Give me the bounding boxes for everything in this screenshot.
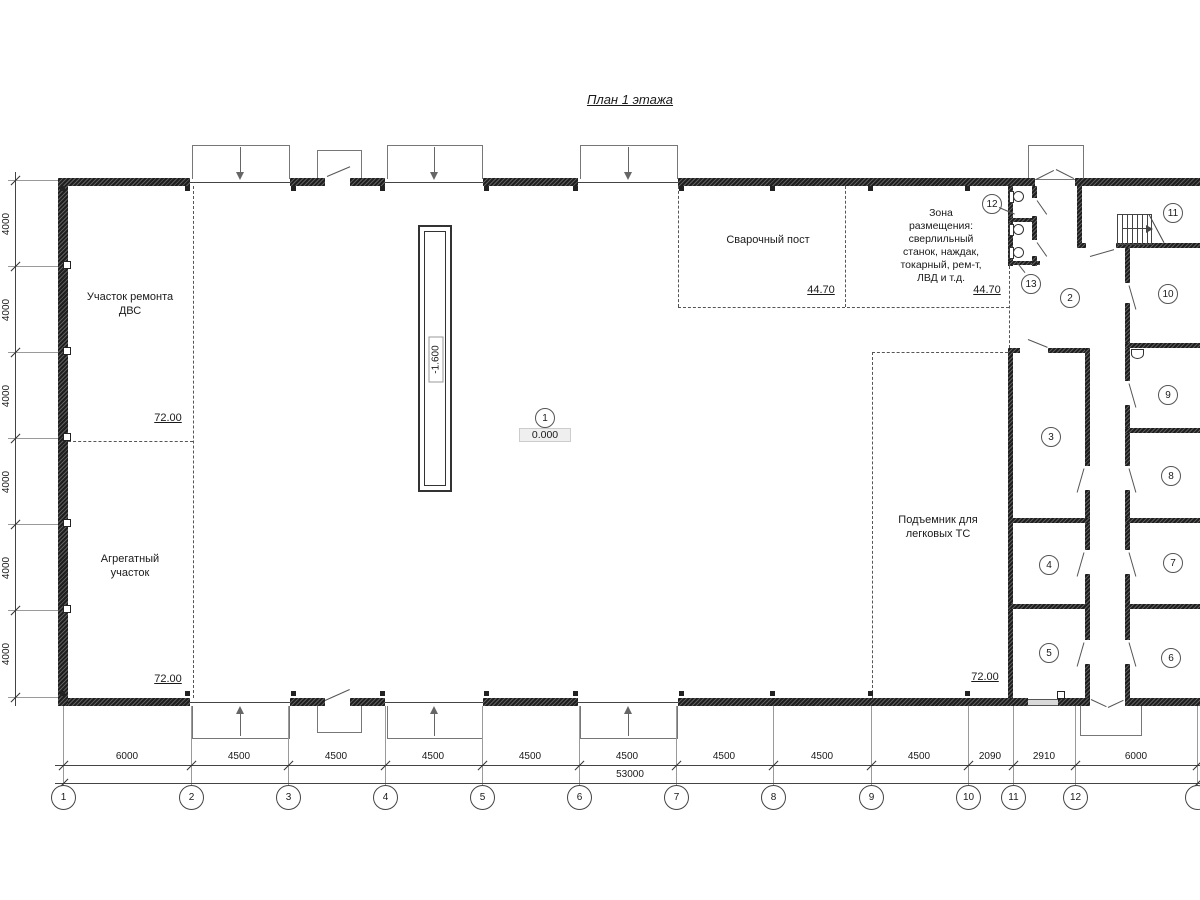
dimension-line xyxy=(55,783,1200,784)
axis-bubble-6: 6 xyxy=(567,785,592,810)
wall xyxy=(290,178,325,186)
dimension-total: 53000 xyxy=(600,769,660,781)
extension-line xyxy=(773,706,774,786)
wall xyxy=(1125,664,1130,698)
room-label: Подъемник для xyxy=(888,514,988,527)
room-label: токарный, рем-т, xyxy=(891,259,991,272)
door-swing xyxy=(1077,468,1085,492)
room-label: размещения: xyxy=(891,220,991,233)
room-number-5: 5 xyxy=(1039,643,1059,663)
door-swing xyxy=(1077,552,1085,576)
axis-bubble-4: 4 xyxy=(373,785,398,810)
wall xyxy=(1048,348,1090,353)
gate-arrow-icon xyxy=(240,147,241,173)
room-label: станок, наждак, xyxy=(891,246,991,259)
wall xyxy=(350,698,385,706)
wall xyxy=(678,698,1028,706)
dimension-value: 6000 xyxy=(1111,751,1161,763)
axis-bubble-11: 11 xyxy=(1001,785,1026,810)
wall xyxy=(1125,343,1200,348)
gate-leaf-line xyxy=(190,702,290,703)
dimension-value: 4000 xyxy=(1,462,13,502)
dimension-value: 4500 xyxy=(699,751,749,763)
dimension-line xyxy=(55,765,1200,766)
room-label: легковых ТС xyxy=(888,528,988,541)
room-number-6: 6 xyxy=(1161,648,1181,668)
dimension-value: 4500 xyxy=(505,751,555,763)
stairs-direction-arrow xyxy=(1122,228,1146,229)
wall xyxy=(290,698,325,706)
room-number-8: 8 xyxy=(1161,466,1181,486)
dimension-value: 6000 xyxy=(102,751,152,763)
wall xyxy=(1075,178,1200,186)
wall xyxy=(58,178,68,706)
pilaster xyxy=(380,186,385,191)
pilaster xyxy=(291,186,296,191)
zone-boundary xyxy=(678,307,1009,308)
wall xyxy=(1008,348,1020,353)
gate-arrow-icon xyxy=(434,147,435,173)
door-swing xyxy=(325,689,350,701)
extension-line xyxy=(1197,706,1198,786)
room-number-9: 9 xyxy=(1158,385,1178,405)
pilaster xyxy=(63,519,71,527)
room-number-2: 2 xyxy=(1060,288,1080,308)
dimension-value: 2090 xyxy=(965,751,1015,763)
wall xyxy=(1125,698,1200,706)
room-label: ЛВД и т.д. xyxy=(891,272,991,285)
drawing-title: План 1 этажа xyxy=(555,92,705,107)
toilet-icon xyxy=(1013,191,1024,202)
room-number-7: 7 xyxy=(1163,553,1183,573)
wall xyxy=(1032,186,1037,198)
extension-line xyxy=(1075,706,1076,786)
extension-line xyxy=(191,706,192,786)
dimension-value: 4000 xyxy=(1,376,13,416)
door-swing xyxy=(1037,242,1048,256)
pilaster xyxy=(63,433,71,441)
zone-boundary xyxy=(845,186,846,307)
wall xyxy=(58,698,190,706)
room-label: Участок ремонта xyxy=(68,291,192,304)
axis-bubble-3: 3 xyxy=(276,785,301,810)
axis-bubble-9: 9 xyxy=(859,785,884,810)
dimension-value: 4500 xyxy=(214,751,264,763)
dimension-value: 4000 xyxy=(1,290,13,330)
zone-boundary xyxy=(68,441,193,442)
pilaster xyxy=(60,691,65,696)
gate-leaf-line xyxy=(385,182,483,183)
wall xyxy=(1008,604,1090,609)
gate-arrow-icon xyxy=(434,713,435,736)
gate-leaf-line xyxy=(578,182,678,183)
gate-arrow-icon xyxy=(628,147,629,173)
extension-line xyxy=(63,706,64,786)
toilet-icon xyxy=(1013,224,1024,235)
axis-bubble-5: 5 xyxy=(470,785,495,810)
gate-arrow-icon xyxy=(628,713,629,736)
pilaster xyxy=(573,186,578,191)
pit-depth-mark: -1.600 xyxy=(429,337,444,383)
gate-leaf-line xyxy=(385,702,483,703)
extension-line xyxy=(288,706,289,786)
gate-leaf-line xyxy=(190,182,290,183)
pilaster xyxy=(63,261,71,269)
wall xyxy=(58,178,190,186)
extension-line xyxy=(871,706,872,786)
stairs-arrow-icon xyxy=(1146,225,1153,233)
wall xyxy=(1125,303,1130,381)
room-number-1: 1 xyxy=(535,408,555,428)
wall xyxy=(1125,405,1130,466)
pilaster xyxy=(1057,691,1065,699)
floor-plan: План 1 этажа xyxy=(0,0,1200,900)
door-swing xyxy=(1077,642,1085,666)
dimension-value: 4500 xyxy=(797,751,847,763)
wall xyxy=(678,178,1035,186)
dimension-value: 4500 xyxy=(602,751,652,763)
dimension-value: 4500 xyxy=(408,751,458,763)
entrance-porch xyxy=(1080,706,1142,736)
pilaster xyxy=(573,691,578,696)
pilaster xyxy=(965,186,970,191)
pilaster xyxy=(679,691,684,696)
room-number-13: 13 xyxy=(1021,274,1041,294)
extension-line xyxy=(676,706,677,786)
room-area: 72.00 xyxy=(963,671,1007,684)
wall xyxy=(1077,185,1082,247)
axis-bubble-12: 12 xyxy=(1063,785,1088,810)
wall xyxy=(1008,348,1013,698)
axis-bubble-8: 8 xyxy=(761,785,786,810)
room-number-10: 10 xyxy=(1158,284,1178,304)
door-canopy xyxy=(317,706,362,733)
wall xyxy=(1032,216,1037,240)
room-number-11: 11 xyxy=(1163,203,1183,223)
pilaster xyxy=(679,186,684,191)
wall xyxy=(1125,604,1200,609)
room-label: ДВС xyxy=(68,305,192,318)
axis-bubble-13 xyxy=(1185,785,1200,810)
extension-line xyxy=(968,706,969,786)
room-number-3: 3 xyxy=(1041,427,1061,447)
dimension-value: 4500 xyxy=(894,751,944,763)
gate-leaf-line xyxy=(578,702,678,703)
axis-bubble-2: 2 xyxy=(179,785,204,810)
pilaster xyxy=(185,186,190,191)
pilaster xyxy=(291,691,296,696)
wall xyxy=(1077,243,1086,248)
wall xyxy=(1125,248,1130,283)
room-area: 72.00 xyxy=(146,673,190,686)
zone-boundary xyxy=(193,186,194,698)
zone-boundary xyxy=(1009,266,1010,348)
extension-line xyxy=(385,706,386,786)
axis-bubble-1: 1 xyxy=(51,785,76,810)
room-area: 72.00 xyxy=(146,412,190,425)
wall xyxy=(1125,518,1200,523)
extension-line xyxy=(579,706,580,786)
pilaster xyxy=(185,691,190,696)
dimension-value: 4000 xyxy=(1,204,13,244)
wall xyxy=(1032,256,1037,266)
door-swing xyxy=(1090,249,1114,257)
extension-line xyxy=(482,706,483,786)
wall xyxy=(1085,664,1090,698)
wall xyxy=(1058,698,1090,706)
window xyxy=(1028,699,1058,706)
door-canopy xyxy=(317,150,362,179)
wall xyxy=(483,178,578,186)
pilaster xyxy=(63,347,71,355)
pilaster xyxy=(60,186,65,191)
room-label: сверлильный xyxy=(891,233,991,246)
dimension-value: 2910 xyxy=(1019,751,1069,763)
room-number-12: 12 xyxy=(982,194,1002,214)
zone-boundary xyxy=(678,186,679,307)
dimension-value: 4000 xyxy=(1,548,13,588)
pilaster xyxy=(484,186,489,191)
dimension-value: 4000 xyxy=(1,634,13,674)
room-label: участок xyxy=(78,567,182,580)
pilaster xyxy=(868,186,873,191)
wall xyxy=(483,698,578,706)
zone-boundary xyxy=(872,352,873,698)
axis-bubble-10: 10 xyxy=(956,785,981,810)
room-number-4: 4 xyxy=(1039,555,1059,575)
axis-bubble-7: 7 xyxy=(664,785,689,810)
zone-boundary xyxy=(872,352,1008,353)
pilaster xyxy=(380,691,385,696)
entrance-vestibule xyxy=(1028,145,1084,180)
pilaster xyxy=(63,605,71,613)
door-swing xyxy=(1028,339,1048,348)
room-label: Агрегатный xyxy=(78,553,182,566)
toilet-icon xyxy=(1013,247,1024,258)
wall xyxy=(1008,218,1035,222)
pilaster xyxy=(965,691,970,696)
room-label: Сварочный пост xyxy=(716,234,820,247)
wall xyxy=(1125,428,1200,433)
wall xyxy=(1085,348,1090,466)
pilaster xyxy=(770,691,775,696)
wall xyxy=(1008,518,1090,523)
pilaster xyxy=(770,186,775,191)
door-swing xyxy=(1037,200,1048,214)
wall xyxy=(350,178,385,186)
pilaster xyxy=(868,691,873,696)
room-label: Зона xyxy=(891,207,991,220)
room-area: 44.70 xyxy=(799,284,843,297)
room-area: 44.70 xyxy=(965,284,1009,297)
dimension-value: 4500 xyxy=(311,751,361,763)
extension-line xyxy=(1013,706,1014,786)
sink-icon xyxy=(1131,349,1144,359)
pilaster xyxy=(484,691,489,696)
floor-level-mark: 0.000 xyxy=(519,428,571,442)
gate-arrow-icon xyxy=(240,713,241,736)
